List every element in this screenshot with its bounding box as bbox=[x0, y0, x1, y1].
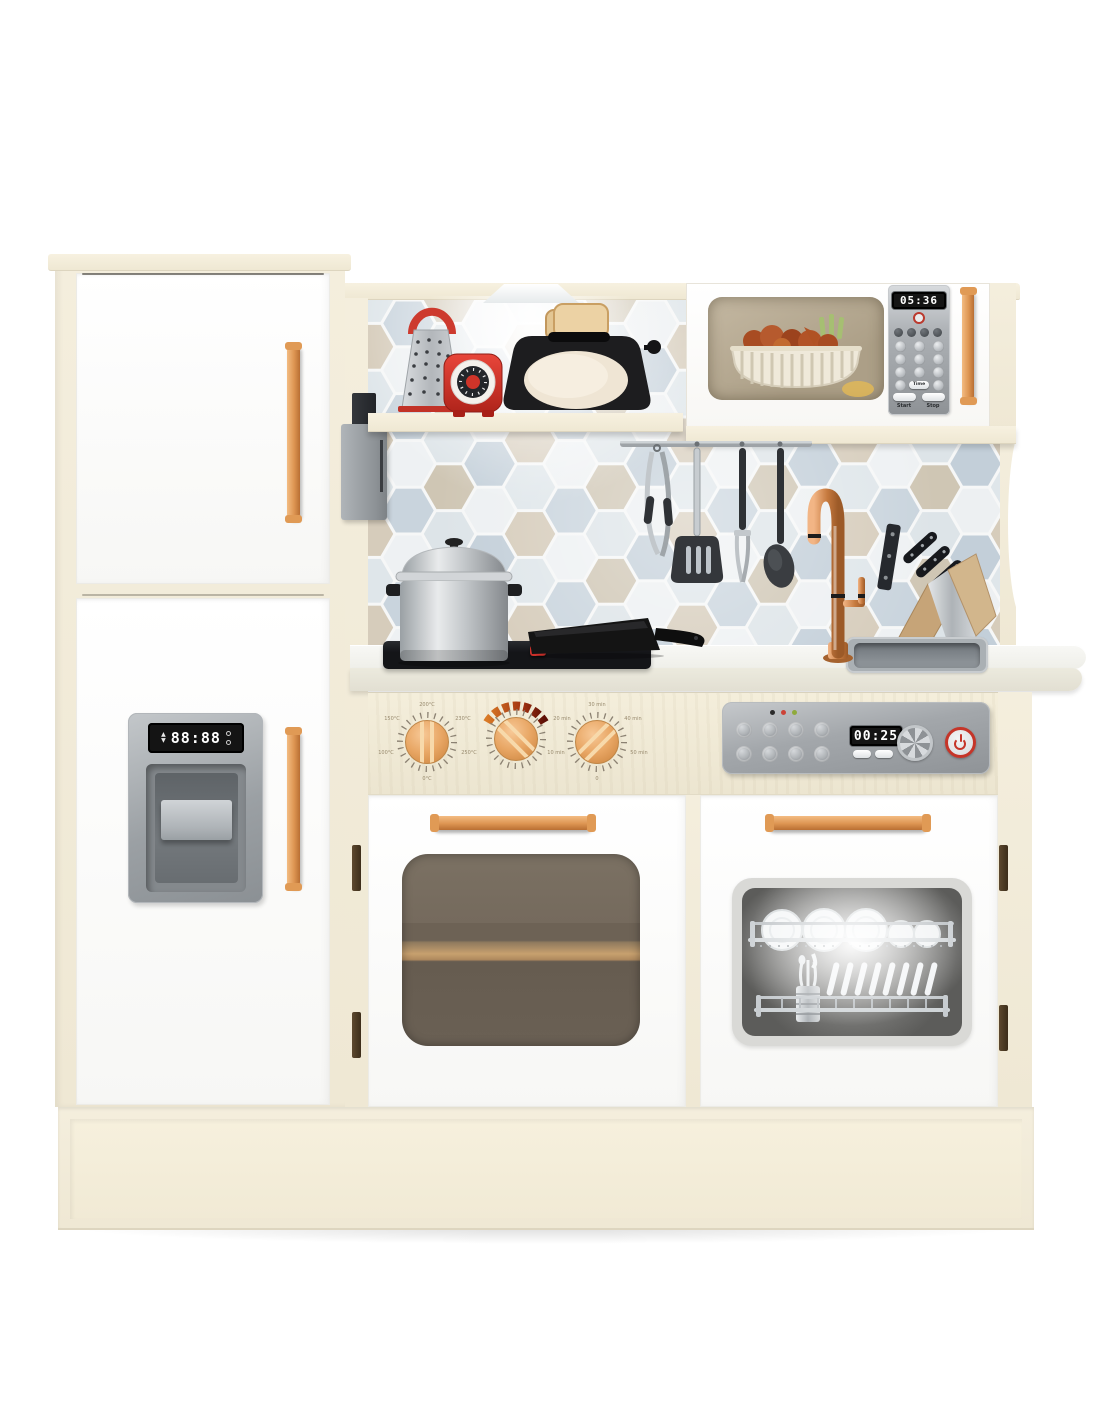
magnetic-strip bbox=[877, 523, 901, 590]
microwave-stop-button bbox=[922, 393, 945, 401]
heat-knob bbox=[487, 706, 544, 766]
floor-shadow bbox=[70, 1228, 1020, 1244]
microwave-preset-icon bbox=[914, 341, 925, 352]
indicator-led-green bbox=[792, 710, 797, 715]
dishwasher-mode-icon bbox=[762, 746, 778, 762]
microwave-display: 05:36 bbox=[892, 292, 946, 309]
microwave-time-button: Time bbox=[909, 381, 929, 389]
knob-label: 40 min bbox=[624, 716, 641, 722]
knob-label: 20 min bbox=[553, 716, 570, 722]
power-icon-line bbox=[960, 734, 963, 742]
knob-label: 230°C bbox=[455, 716, 471, 722]
dishwasher-button bbox=[853, 750, 871, 758]
knob-label: 30 min bbox=[588, 702, 605, 708]
knob-label: 200°C bbox=[419, 702, 435, 708]
stockpot bbox=[386, 536, 522, 668]
temperature-knob bbox=[400, 715, 454, 769]
timer-knob bbox=[570, 715, 624, 769]
microwave-preset-icon bbox=[895, 354, 906, 365]
toaster bbox=[504, 304, 662, 410]
kitchen-timer bbox=[444, 354, 502, 417]
microwave-handle bbox=[962, 290, 974, 402]
right-curve-cutout bbox=[1008, 428, 1038, 618]
dishwasher-hinge bbox=[999, 845, 1008, 891]
microwave-preset-icon bbox=[895, 341, 906, 352]
microwave-option-button bbox=[933, 328, 942, 337]
microwave-cancel-button bbox=[913, 312, 925, 324]
start-label: Start bbox=[897, 403, 911, 409]
frying-pan bbox=[520, 606, 710, 660]
microwave-preset-icon bbox=[933, 367, 944, 378]
right-upper-frame bbox=[990, 283, 1016, 433]
dishwasher-button bbox=[875, 750, 893, 758]
tongs bbox=[643, 445, 673, 556]
microwave-control-panel: 05:36 Time Start Stop bbox=[888, 285, 950, 415]
knob-label: 0 bbox=[595, 776, 598, 782]
dish-racks bbox=[742, 888, 962, 1036]
slotted-spatula bbox=[671, 442, 723, 584]
knob-label: 250°C bbox=[461, 750, 477, 756]
dishwasher-mode-icon bbox=[814, 746, 830, 762]
dishwasher-hinge bbox=[999, 1005, 1008, 1051]
time-button-label: Time bbox=[913, 382, 925, 387]
microwave-preset-icon bbox=[914, 367, 925, 378]
mid-divider bbox=[686, 795, 700, 1107]
ice-dispenser-display: ▲ ▼ 88:88 bbox=[148, 723, 244, 753]
microwave-preset-icon bbox=[933, 380, 944, 391]
kick-panel-recess bbox=[70, 1119, 1022, 1219]
dishwasher-mode-icon bbox=[736, 722, 752, 738]
microwave-preset-icon bbox=[914, 354, 925, 365]
dishwasher-control-panel: 00:25 bbox=[722, 702, 990, 774]
dishwasher-window bbox=[742, 888, 962, 1036]
down-arrow-icon: ▼ bbox=[161, 738, 166, 744]
knob-label: 100°C bbox=[378, 750, 394, 756]
microwave-option-button bbox=[907, 328, 916, 337]
dispenser-buttons bbox=[226, 731, 231, 745]
microwave-window bbox=[708, 297, 884, 400]
dishwasher-mode-icon bbox=[788, 746, 804, 762]
fridge-top-board bbox=[48, 254, 351, 271]
knob-label: 50 min bbox=[630, 750, 647, 756]
microwave-start-button bbox=[893, 393, 916, 401]
microwave-time: 05:36 bbox=[900, 294, 938, 307]
dispenser-paddle bbox=[161, 800, 232, 840]
fridge-upper-handle bbox=[287, 345, 300, 520]
microwave-preset-icon bbox=[933, 341, 944, 352]
indicator-led-black bbox=[770, 710, 775, 715]
ice-display-digits: 88:88 bbox=[171, 729, 221, 747]
microwave-preset-icon bbox=[933, 354, 944, 365]
oven-hinge bbox=[352, 1012, 361, 1058]
dishwasher-mode-icon bbox=[736, 746, 752, 762]
fridge-door-gap bbox=[82, 594, 324, 596]
dispenser-button-icon bbox=[226, 740, 231, 745]
dishwasher-handle bbox=[768, 816, 928, 830]
microwave-option-button bbox=[920, 328, 929, 337]
dispenser-button-icon bbox=[226, 731, 231, 736]
arrow-buttons: ▲ ▼ bbox=[161, 732, 166, 743]
dishwasher-time: 00:25 bbox=[854, 729, 898, 744]
stop-label: Stop bbox=[926, 403, 939, 409]
dishwasher-mode-icon bbox=[762, 722, 778, 738]
shelf-items bbox=[396, 296, 666, 420]
power-button bbox=[945, 727, 976, 758]
dishwasher-mode-icon bbox=[814, 722, 830, 738]
knob-label: 10 min bbox=[547, 750, 564, 756]
microwave-preset-icon bbox=[895, 367, 906, 378]
fridge-lower-handle bbox=[287, 730, 300, 888]
oven-window bbox=[402, 854, 640, 1046]
microwave-preset-icon bbox=[895, 380, 906, 391]
dishwasher-display: 00:25 bbox=[850, 726, 902, 746]
knob-label: 0°C bbox=[422, 776, 431, 782]
dispenser-slot bbox=[380, 440, 383, 492]
indicator-led-red bbox=[781, 710, 786, 715]
food-basket bbox=[708, 297, 884, 400]
oven-handle bbox=[433, 816, 593, 830]
play-kitchen-product-image: ▲ ▼ 88:88 bbox=[0, 0, 1100, 1422]
oven-hinge bbox=[352, 845, 361, 891]
microwave-option-button bbox=[894, 328, 903, 337]
dishwasher-mode-icon bbox=[788, 722, 804, 738]
faucet bbox=[788, 482, 880, 664]
carving-fork bbox=[734, 442, 751, 583]
oven-knobs bbox=[380, 698, 640, 790]
knob-label: 150°C bbox=[384, 716, 400, 722]
fridge-door-gap bbox=[82, 273, 324, 275]
dishwasher-dial bbox=[897, 725, 933, 761]
